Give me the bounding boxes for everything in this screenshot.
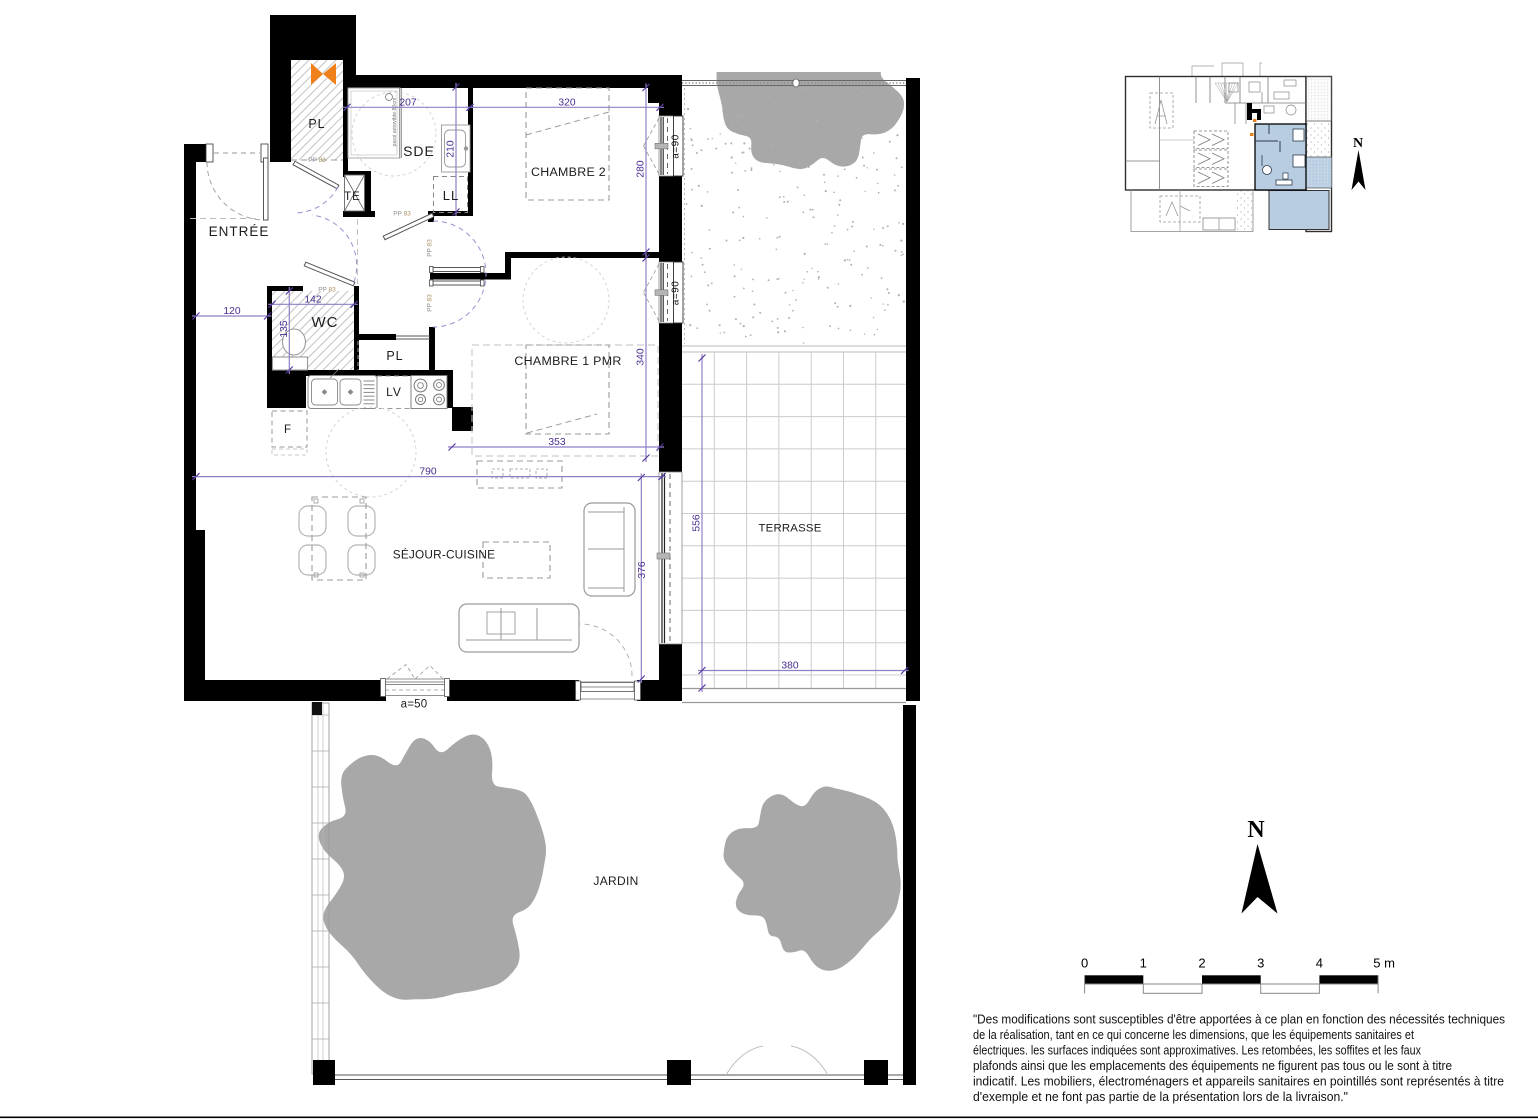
svg-text:indicatif. Les mobiliers, élec: indicatif. Les mobiliers, électroménager… <box>973 1074 1504 1088</box>
svg-text:207: 207 <box>399 98 416 109</box>
svg-text:LL: LL <box>443 188 459 203</box>
svg-text:a=90: a=90 <box>671 134 682 159</box>
svg-text:CHAMBRE 1 PMR: CHAMBRE 1 PMR <box>514 354 621 368</box>
svg-text:PL: PL <box>308 117 325 131</box>
svg-text:PL: PL <box>386 349 403 363</box>
svg-text:TE: TE <box>344 191 361 203</box>
svg-text:1: 1 <box>1140 956 1147 971</box>
svg-text:556: 556 <box>692 514 703 531</box>
svg-text:0: 0 <box>1081 956 1088 971</box>
svg-text:380: 380 <box>781 661 798 672</box>
svg-text:2: 2 <box>1198 956 1205 971</box>
svg-text:5 m: 5 m <box>1373 956 1395 971</box>
svg-text:SDE: SDE <box>403 143 435 159</box>
svg-text:SÉJOUR-CUISINE: SÉJOUR-CUISINE <box>393 548 495 562</box>
svg-text:PP 83: PP 83 <box>308 157 326 164</box>
svg-text:d'exemple et ne font pas parti: d'exemple et ne font pas partie de la pr… <box>973 1090 1348 1104</box>
svg-text:3: 3 <box>1257 956 1264 971</box>
svg-text:F: F <box>284 424 292 436</box>
svg-text:PP 83: PP 83 <box>318 287 336 294</box>
svg-text:WC: WC <box>312 314 339 331</box>
svg-text:LV: LV <box>386 385 402 399</box>
svg-text:353: 353 <box>548 437 565 448</box>
svg-text:120: 120 <box>223 306 240 317</box>
svg-text:376: 376 <box>637 561 648 578</box>
svg-text:de la réalisation, tant en ce: de la réalisation, tant en ce qui concer… <box>973 1028 1414 1042</box>
svg-text:électriques. les surfaces indi: électriques. les surfaces indiquées sont… <box>973 1043 1422 1057</box>
svg-text:CHAMBRE 2: CHAMBRE 2 <box>531 165 606 179</box>
svg-text:320: 320 <box>558 98 575 109</box>
svg-text:135: 135 <box>279 320 290 337</box>
svg-text:TERRASSE: TERRASSE <box>759 523 822 535</box>
svg-text:plafonds ainsi que les emplace: plafonds ainsi que les emplacements des … <box>973 1059 1452 1073</box>
svg-text:4: 4 <box>1316 956 1323 971</box>
svg-text:N: N <box>1353 136 1363 151</box>
svg-text:paroi amovible 80cm: paroi amovible 80cm <box>392 97 398 146</box>
svg-text:a=50: a=50 <box>401 699 428 711</box>
svg-text:PP 83: PP 83 <box>393 211 411 218</box>
svg-text:"Des modifications sont suscep: "Des modifications sont susceptibles d'ê… <box>973 1012 1505 1026</box>
svg-text:N: N <box>1247 817 1265 843</box>
svg-text:142: 142 <box>304 294 321 305</box>
svg-text:280: 280 <box>636 160 647 177</box>
svg-text:a=90: a=90 <box>671 281 682 306</box>
svg-text:210: 210 <box>446 140 457 157</box>
svg-text:PP 83: PP 83 <box>427 294 434 312</box>
svg-text:JARDIN: JARDIN <box>593 874 638 888</box>
svg-text:ENTRÉE: ENTRÉE <box>209 224 270 239</box>
svg-text:790: 790 <box>419 467 436 478</box>
svg-text:340: 340 <box>636 348 647 365</box>
svg-text:PP 83: PP 83 <box>427 239 434 257</box>
